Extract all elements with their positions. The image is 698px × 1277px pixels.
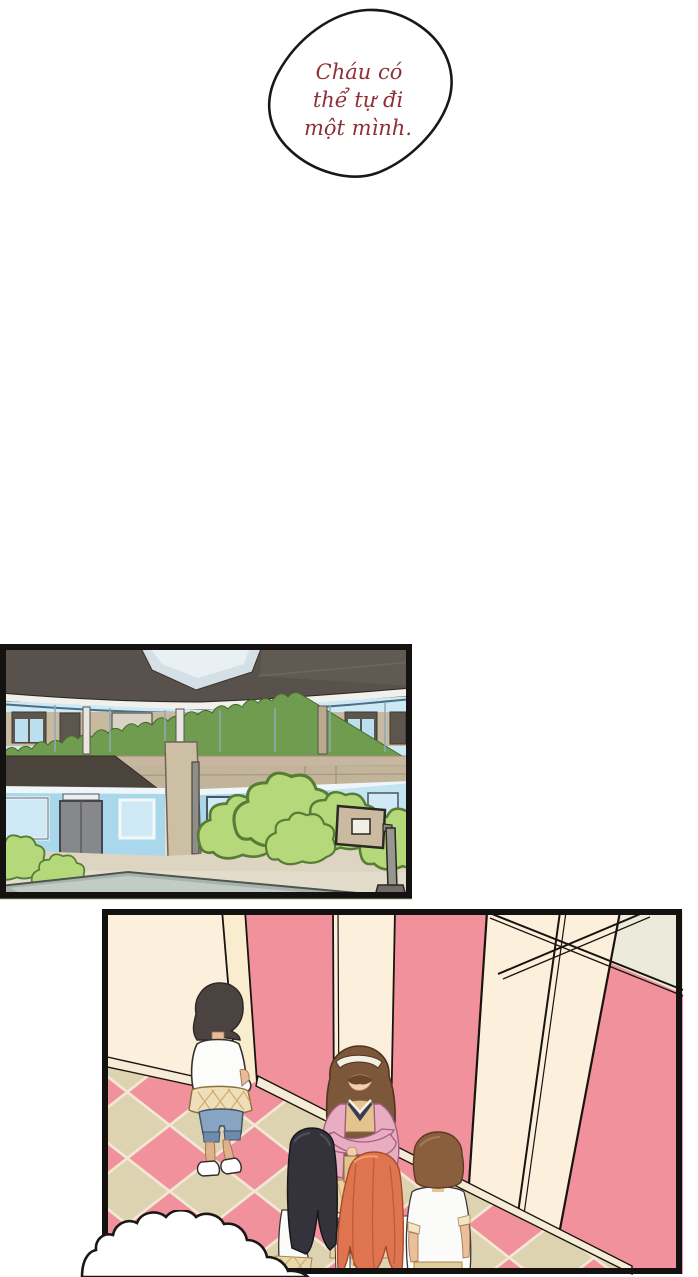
- character-student-brown-hair: [406, 1132, 470, 1272]
- dialogue-line-3: một mình.: [304, 116, 412, 140]
- studentC-arm: [409, 1232, 418, 1262]
- girl-shoe: [197, 1161, 219, 1176]
- comic-page: Cháu có thể tự đi một mình.: [0, 0, 698, 1277]
- girl-shorts-cuff: [224, 1131, 241, 1140]
- door-transom: [63, 794, 99, 800]
- girl-shoe: [221, 1158, 241, 1174]
- panel-school-exterior: [0, 644, 412, 900]
- speech-bubble: Cháu có thể tự đi một mình.: [245, 2, 475, 187]
- window: [2, 798, 48, 839]
- corridor-post: [83, 707, 90, 754]
- school-scene: [0, 644, 412, 900]
- window: [120, 800, 154, 838]
- studentC-hair: [413, 1132, 463, 1188]
- dialogue-line-2: thể tự đi: [313, 88, 403, 112]
- cloud-bubble-shape: [82, 1210, 308, 1277]
- corridor-post: [318, 706, 327, 754]
- girl-leg: [205, 1142, 215, 1162]
- cloud-bubble: [75, 1210, 350, 1277]
- girl-shorts-cuff: [203, 1132, 220, 1142]
- dialogue-line-1: Cháu có: [316, 60, 403, 84]
